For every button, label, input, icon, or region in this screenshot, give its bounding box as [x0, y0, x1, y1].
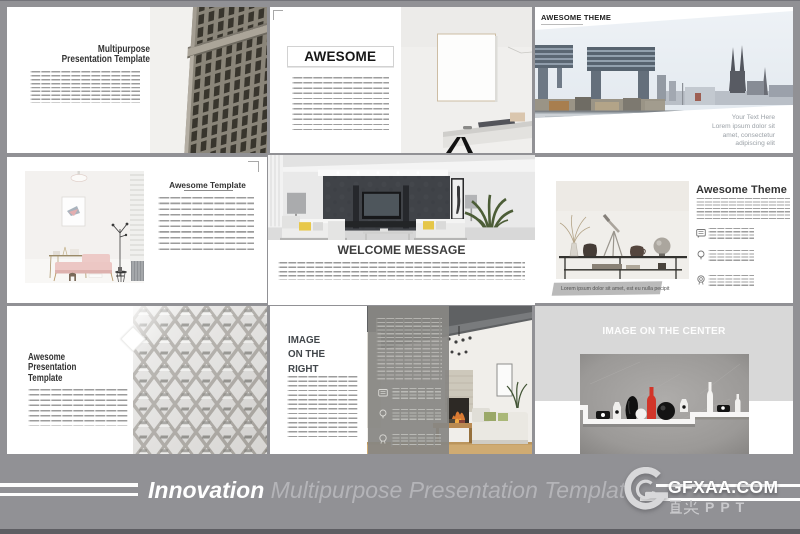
svg-text:PPT: PPT — [705, 499, 750, 515]
